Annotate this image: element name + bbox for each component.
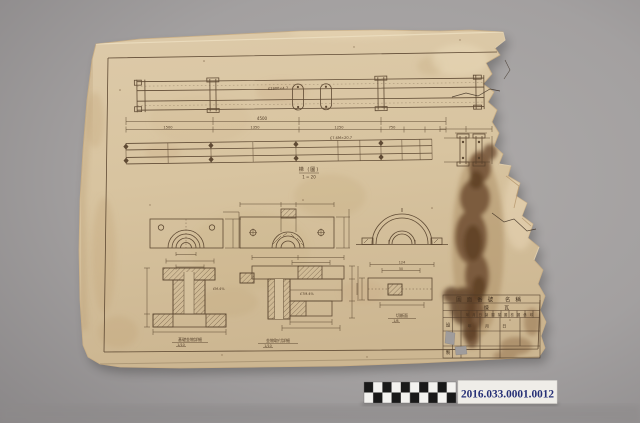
archive-photo: £2800×4.7 £7.6M×20.7 4500 1500 1350 1250… — [0, 0, 640, 423]
scale-caption-title: 梯 (圖) — [299, 166, 320, 173]
note-f1: £M.4% — [213, 287, 225, 291]
title-block-row1: 圖面番號 名稱 — [456, 296, 526, 304]
dim-seg4: 750 — [389, 125, 397, 129]
note-f2: £7M.4% — [300, 292, 314, 296]
scale-caption-ratio: 1 = 20 — [302, 175, 316, 180]
caption-g2: 金物取付詳細 — [266, 337, 290, 343]
title-block-col3: 製 — [446, 349, 451, 356]
dim-g3-mid: 50 — [399, 267, 403, 271]
beam2-label: £7.6M×20.7 — [330, 136, 352, 140]
calibration-checker — [364, 382, 456, 403]
dim-seg2: 1350 — [250, 125, 260, 129]
caption-g3: 切斷面 — [396, 312, 408, 318]
caption-g2-scale: 1/10 — [264, 344, 272, 348]
caption-g3-scale: 1/8 — [393, 319, 398, 323]
dim-seg1: 1500 — [163, 125, 173, 129]
accession-number-text: 2016.033.0001.0012 — [461, 387, 554, 401]
title-block-row4: 年 月 日 — [468, 323, 513, 329]
beam1-label: £2800×4.7 — [268, 86, 288, 91]
title-block-col1: 設 — [446, 322, 451, 329]
title-block-row2: 煉 瓦 — [484, 304, 517, 311]
title-block-row3: 年月日製圖描圖檢圖係印 — [466, 312, 536, 317]
dim-seg3: 1250 — [334, 125, 344, 129]
background-lower-shade — [0, 405, 640, 423]
calibration-assembly: 2016.033.0001.0012 — [362, 381, 558, 407]
dim-g3-top: 124 — [399, 261, 405, 265]
dim-total: 4500 — [257, 116, 268, 121]
caption-g1: 基礎金物詳細 — [178, 336, 202, 342]
caption-g1-scale: 1/10 — [177, 343, 185, 347]
photo-canvas: £2800×4.7 £7.6M×20.7 4500 1500 1350 1250… — [0, 0, 640, 423]
